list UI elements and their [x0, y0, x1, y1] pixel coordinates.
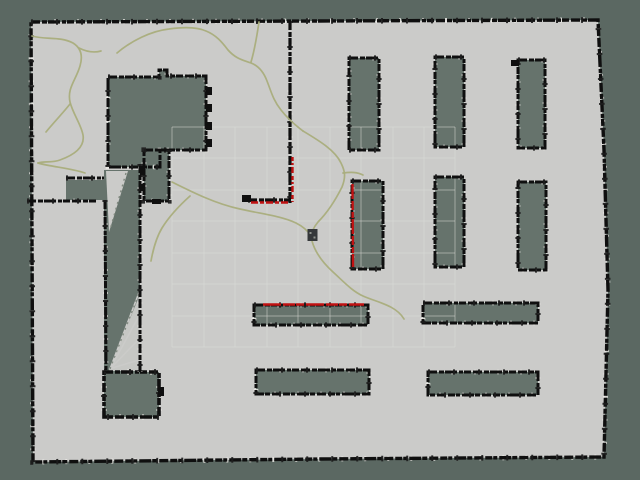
shelf-h4	[428, 372, 538, 395]
notch-divider-foot-end	[242, 195, 251, 202]
notch-house-3	[206, 122, 212, 130]
shelf-v6	[518, 182, 546, 270]
inner-structure-annex	[144, 150, 169, 201]
notch-annex-3	[152, 199, 161, 204]
shelf-v3	[518, 60, 545, 148]
shelf-h2	[423, 303, 538, 323]
left-dark-band	[66, 180, 105, 200]
notch-house-1	[206, 87, 212, 95]
shelf-v1	[349, 58, 379, 150]
notch-annex-1	[140, 168, 145, 175]
shelf-v4	[352, 181, 383, 269]
notch-house-2	[206, 104, 212, 112]
robot-marker	[308, 229, 318, 241]
scan-shelf-v4-left	[353, 184, 354, 267]
notch-shelf-v3	[511, 60, 519, 66]
map-viewport[interactable]	[0, 0, 640, 480]
shelf-v2	[435, 57, 464, 147]
notch-annex-2	[140, 184, 145, 191]
map-canvas	[0, 0, 640, 480]
shelf-h1	[254, 305, 368, 325]
corridor-block	[104, 372, 159, 417]
shelf-h3	[256, 370, 369, 394]
robot-pose-square[interactable]	[308, 229, 318, 241]
notch-block	[158, 387, 164, 396]
notch-house-4	[206, 139, 212, 147]
